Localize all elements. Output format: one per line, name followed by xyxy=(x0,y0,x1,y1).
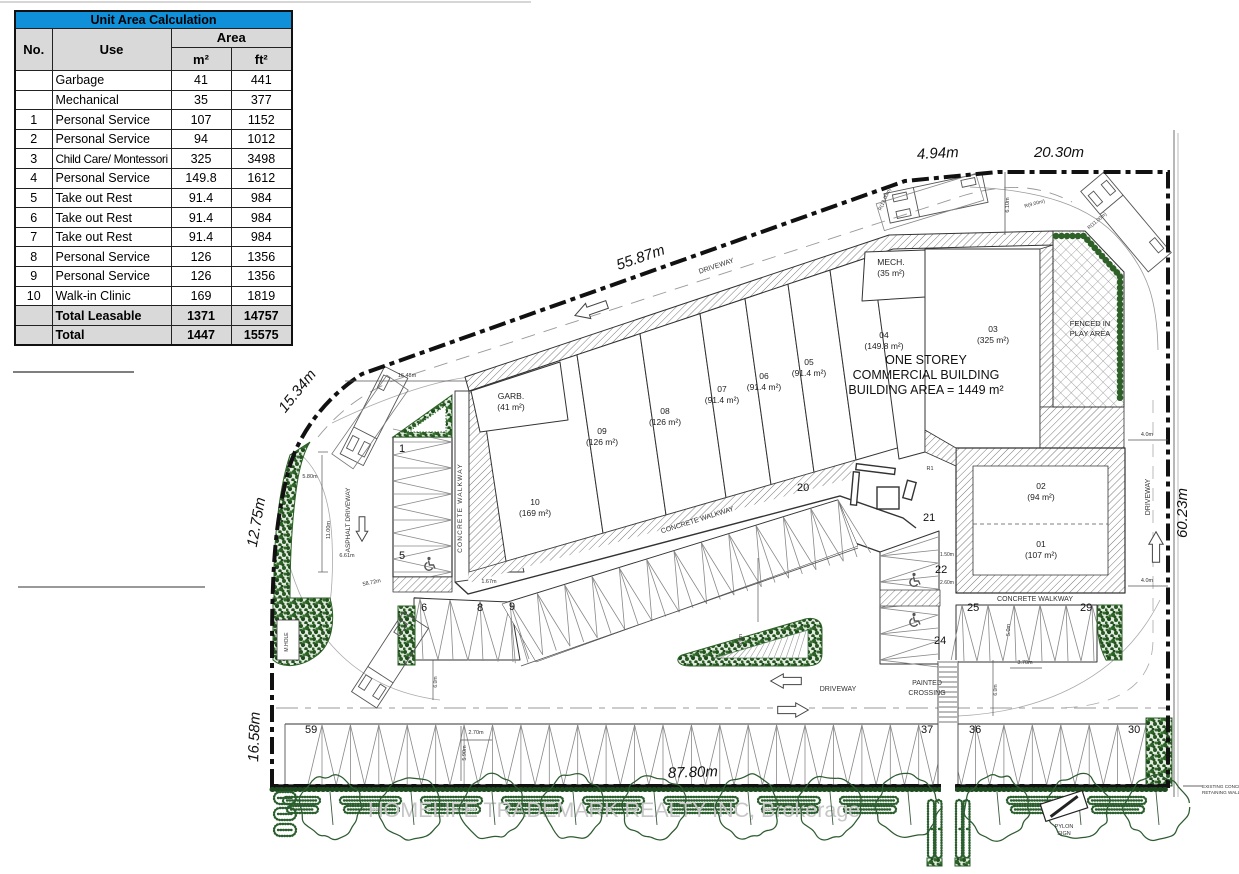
svg-text:08: 08 xyxy=(660,406,670,416)
svg-text:5.80m: 5.80m xyxy=(302,474,318,480)
svg-text:(149.8 m²): (149.8 m²) xyxy=(864,341,903,351)
svg-text:PYLON: PYLON xyxy=(1055,824,1074,830)
svg-text:DRIVEWAY: DRIVEWAY xyxy=(1145,478,1152,515)
svg-text:22: 22 xyxy=(935,564,947,576)
svg-text:03: 03 xyxy=(988,324,998,334)
svg-text:59: 59 xyxy=(305,724,317,736)
svg-text:4.94m: 4.94m xyxy=(916,144,959,163)
svg-text:4.0m: 4.0m xyxy=(1141,432,1154,438)
svg-text:(107 m²): (107 m²) xyxy=(1025,550,1057,560)
svg-text:3.0m: 3.0m xyxy=(738,633,744,646)
svg-text:FENCED IN: FENCED IN xyxy=(1070,319,1110,328)
svg-text:GARB.: GARB. xyxy=(498,391,524,401)
svg-text:(91.4 m²): (91.4 m²) xyxy=(747,382,782,392)
svg-text:6.61m: 6.61m xyxy=(339,553,355,559)
svg-text:09: 09 xyxy=(597,426,607,436)
svg-text:6.10m: 6.10m xyxy=(1005,197,1011,213)
svg-text:ONE STOREY: ONE STOREY xyxy=(885,353,967,367)
svg-text:(91.4 m²): (91.4 m²) xyxy=(792,368,827,378)
svg-text:(325 m²): (325 m²) xyxy=(977,335,1009,345)
svg-text:87.80m: 87.80m xyxy=(668,763,719,782)
svg-text:(126 m²): (126 m²) xyxy=(649,417,681,427)
svg-text:CONCRETE WALKWAY: CONCRETE WALKWAY xyxy=(457,463,464,553)
svg-text:2.70m: 2.70m xyxy=(468,730,484,736)
svg-text:20: 20 xyxy=(797,482,809,494)
svg-text:5.0m: 5.0m xyxy=(1006,623,1012,636)
svg-text:20.30m: 20.30m xyxy=(1033,144,1084,161)
svg-text:(91.4 m²): (91.4 m²) xyxy=(705,395,740,405)
svg-text:6.0m: 6.0m xyxy=(993,684,999,695)
svg-text:CROSSING: CROSSING xyxy=(908,690,945,697)
svg-text:21: 21 xyxy=(923,512,935,524)
svg-text:M.HOLE: M.HOLE xyxy=(284,632,290,652)
svg-text:8: 8 xyxy=(477,602,483,614)
svg-text:1.50m: 1.50m xyxy=(940,552,954,558)
svg-text:16.58m: 16.58m xyxy=(245,712,264,763)
svg-text:CONCRETE WALKWAY: CONCRETE WALKWAY xyxy=(997,596,1073,603)
svg-text:(35 m²): (35 m²) xyxy=(877,268,905,278)
svg-text:BUILDING AREA = 1449 m²: BUILDING AREA = 1449 m² xyxy=(848,383,1003,397)
svg-text:60.23m: 60.23m xyxy=(1174,488,1191,538)
svg-text:01: 01 xyxy=(1036,539,1046,549)
svg-text:SIGN: SIGN xyxy=(1057,831,1070,837)
svg-text:RETAINING WALL: RETAINING WALL xyxy=(1202,790,1239,795)
svg-text:5.90m: 5.90m xyxy=(462,745,468,761)
svg-text:(126 m²): (126 m²) xyxy=(586,437,618,447)
svg-text:6.0m: 6.0m xyxy=(433,676,439,687)
svg-text:24: 24 xyxy=(934,635,946,647)
svg-text:05: 05 xyxy=(804,357,814,367)
svg-text:07: 07 xyxy=(717,384,727,394)
svg-text:02: 02 xyxy=(1036,481,1046,491)
svg-text:MECH.: MECH. xyxy=(877,257,904,267)
svg-text:(169 m²): (169 m²) xyxy=(519,508,551,518)
svg-text:25: 25 xyxy=(967,602,979,614)
svg-text:3.70m: 3.70m xyxy=(1017,660,1033,666)
svg-text:PLAY AREA: PLAY AREA xyxy=(1070,329,1111,338)
svg-text:4.0m: 4.0m xyxy=(1141,578,1154,584)
svg-text:30: 30 xyxy=(1128,724,1140,736)
svg-text:36: 36 xyxy=(969,724,981,736)
svg-text:PAINTED: PAINTED xyxy=(912,680,942,687)
svg-text:10: 10 xyxy=(530,497,540,507)
svg-text:16.48m: 16.48m xyxy=(398,373,417,379)
svg-text:DRIVEWAY: DRIVEWAY xyxy=(820,686,857,693)
svg-text:1.67m: 1.67m xyxy=(481,579,497,585)
svg-text:COMMERCIAL BUILDING: COMMERCIAL BUILDING xyxy=(853,368,1000,382)
svg-text:06: 06 xyxy=(759,371,769,381)
svg-text:R1: R1 xyxy=(926,466,933,472)
svg-text:1: 1 xyxy=(399,443,405,455)
svg-text:EXISTING CONCRETE: EXISTING CONCRETE xyxy=(1202,784,1239,789)
svg-text:37: 37 xyxy=(921,724,933,736)
svg-text:(41 m²): (41 m²) xyxy=(497,402,525,412)
svg-text:5: 5 xyxy=(399,550,405,562)
svg-text:6: 6 xyxy=(421,602,427,614)
svg-text:11.00m: 11.00m xyxy=(326,521,332,539)
svg-text:2.60m: 2.60m xyxy=(940,580,954,586)
svg-text:29: 29 xyxy=(1080,602,1092,614)
svg-text:9: 9 xyxy=(509,601,515,613)
svg-text:ASPHALT DRIVEWAY: ASPHALT DRIVEWAY xyxy=(345,487,352,552)
svg-text:HOMELIFE TRADEMARK REALTY INC,: HOMELIFE TRADEMARK REALTY INC, Brokerage xyxy=(368,798,860,822)
svg-text:04: 04 xyxy=(879,330,889,340)
svg-text:(94 m²): (94 m²) xyxy=(1027,492,1055,502)
